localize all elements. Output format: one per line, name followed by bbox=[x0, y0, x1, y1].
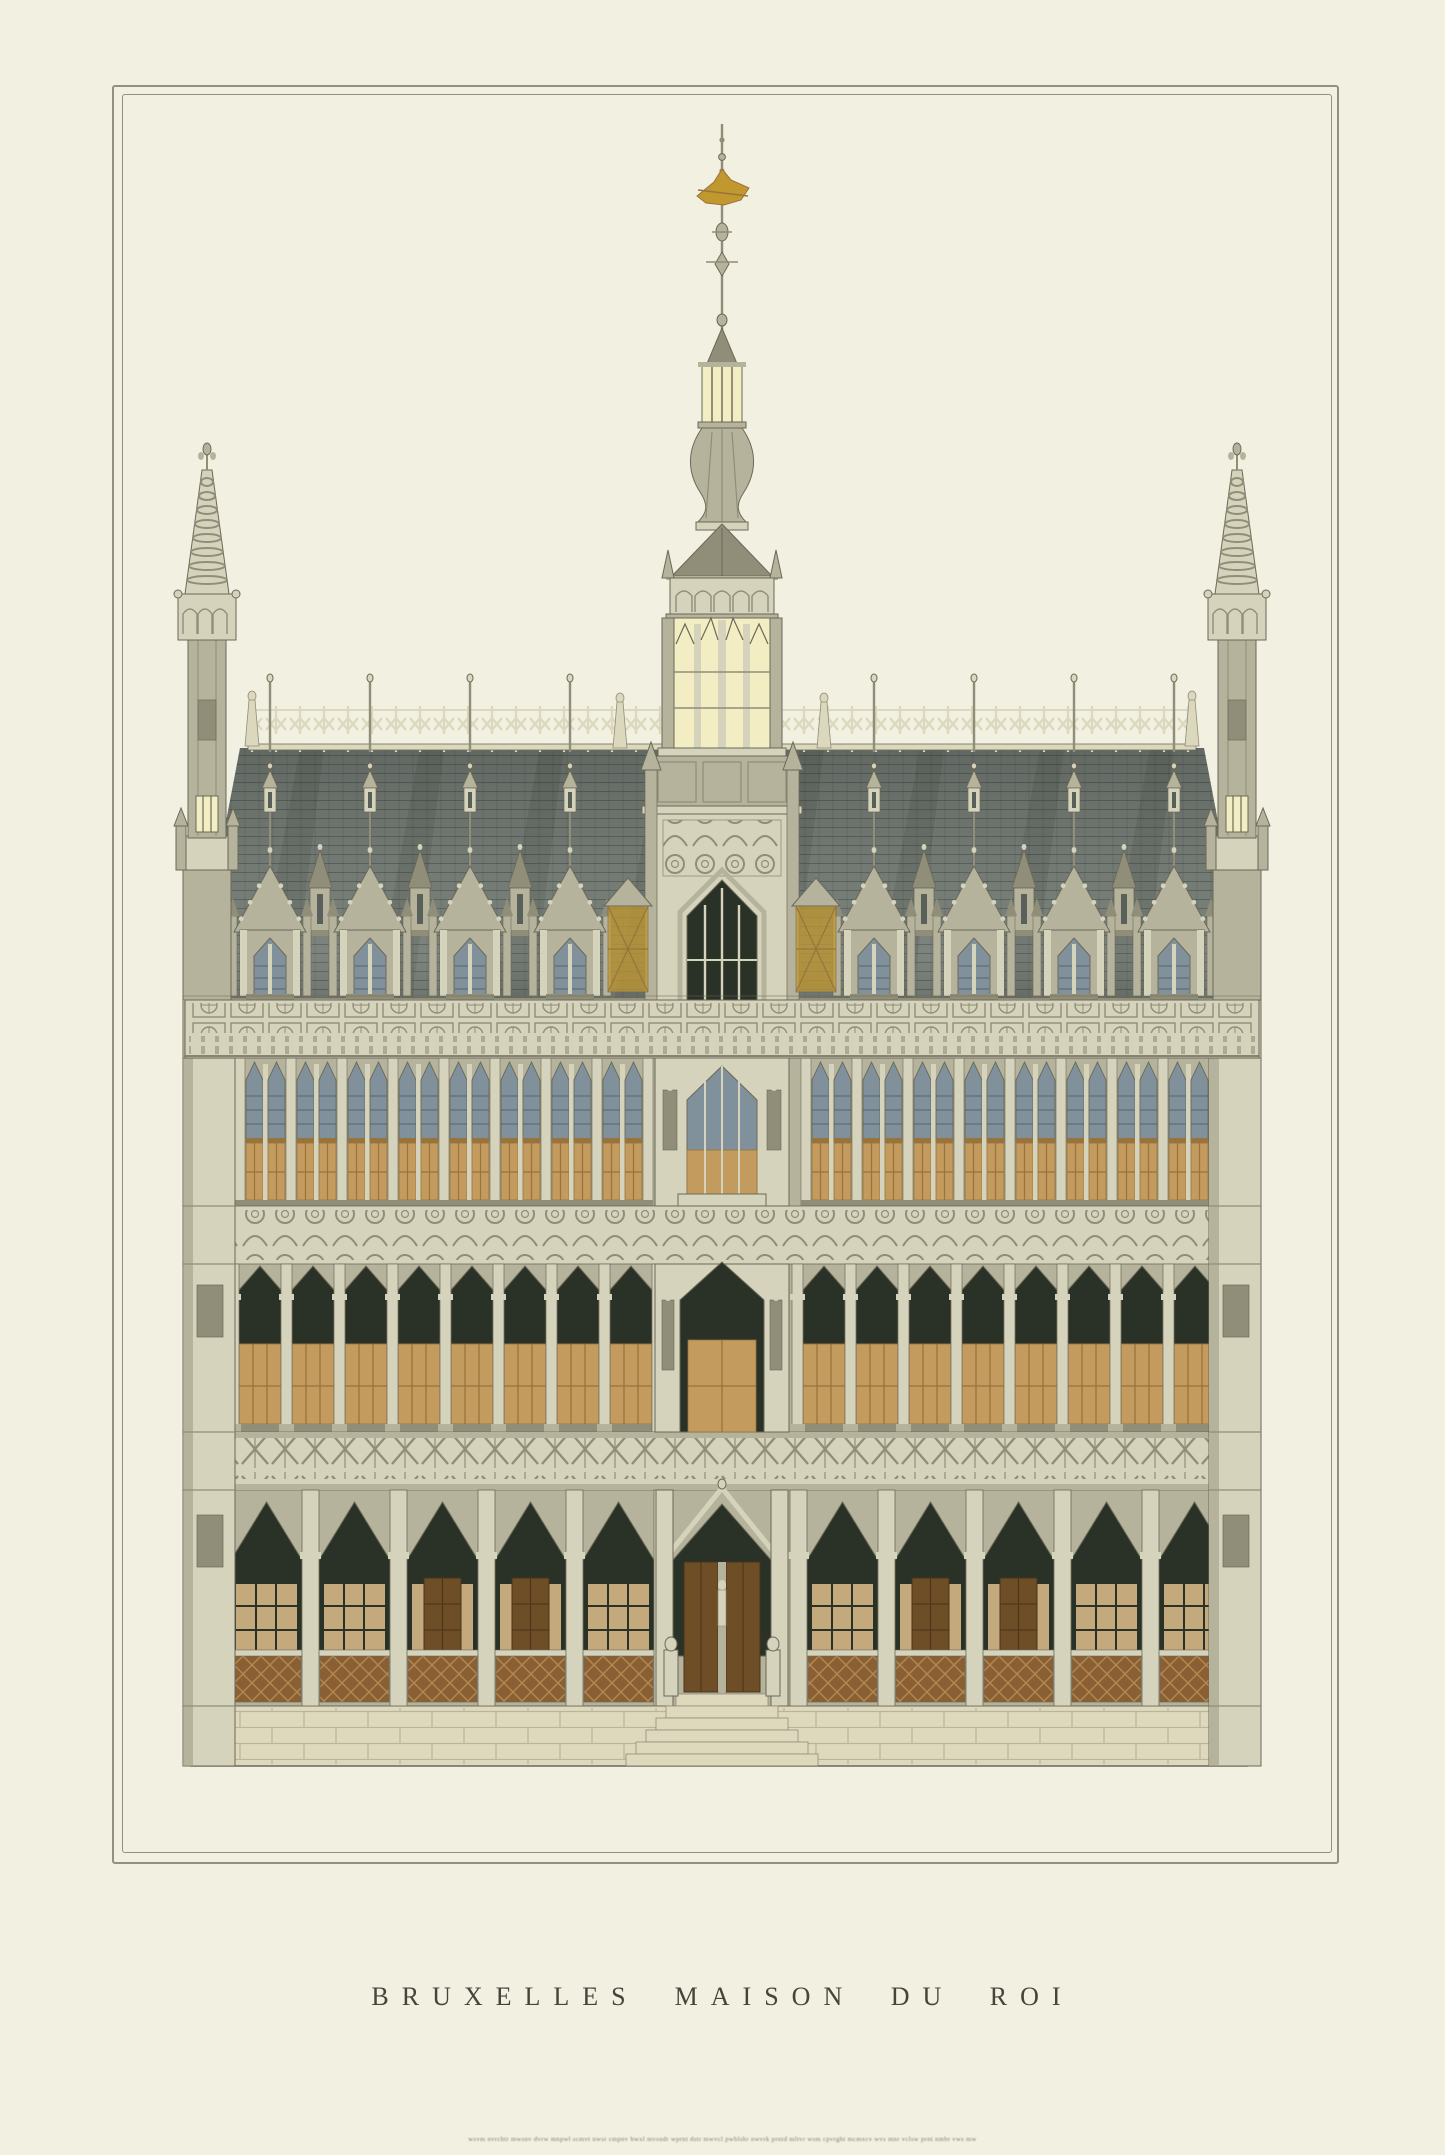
title-city: BRUXELLES bbox=[371, 1982, 638, 2011]
title-building: MAISON DU ROI bbox=[675, 1982, 1074, 2011]
border-frame-inner bbox=[122, 94, 1332, 1853]
colophon-microprint: wsvm nvrchtr mwsnv dvrw mnpwl scmvt nwsr… bbox=[0, 2136, 1445, 2143]
print-title: BRUXELLESMAISON DU ROI bbox=[0, 1982, 1445, 2012]
art-print-poster: BRUXELLESMAISON DU ROI wsvm nvrchtr mwsn… bbox=[0, 0, 1445, 2155]
